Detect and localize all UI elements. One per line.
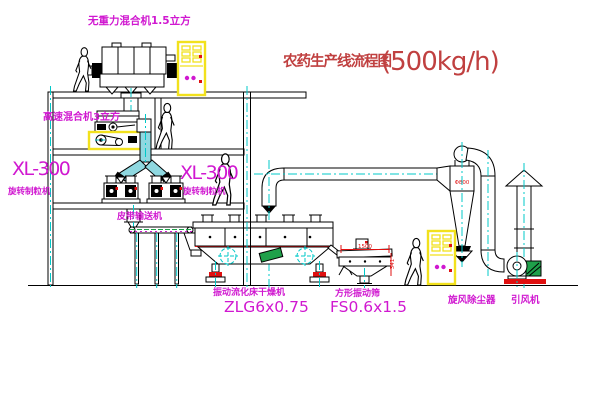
granulator-left-machine [102, 176, 140, 203]
fluid-bed-dryer [193, 215, 333, 287]
label-granulator-right-model: XL-300 [180, 162, 238, 184]
diagram-canvas: Φ800 [0, 0, 600, 403]
label-fan: 引风机 [511, 294, 540, 306]
dimension-screen-height: 341 [390, 259, 396, 270]
control-cabinet-top [178, 42, 205, 95]
dimension-screen-length: 1500 [358, 244, 372, 250]
label-cyclone: 旋风除尘器 [447, 294, 496, 306]
label-granulator-left-name: 旋转制粒机 [7, 186, 51, 197]
person-figure-roof [74, 48, 91, 91]
person-figure-ground [405, 238, 424, 285]
label-dryer-model: ZLG6x0.75 [224, 298, 309, 316]
control-cabinet-ground [428, 231, 455, 284]
label-hs-mixer: 高速混合机3立方 [43, 110, 120, 123]
label-dryer-name: 振动流化床干燥机 [213, 286, 285, 298]
label-belt-conveyor: 皮带输送机 [116, 210, 162, 222]
label-granulator-right-name: 旋转制粒机 [182, 186, 226, 197]
diagram-title-capacity: (500kg/h) [381, 47, 499, 77]
diagram-title: 农药生产线流程图 [282, 52, 391, 70]
label-granulator-left-model: XL-300 [12, 158, 70, 180]
process-flow-diagram: Φ800 [0, 0, 600, 403]
label-screen-model: FS0.6x1.5 [330, 298, 407, 316]
label-gravity-mixer: 无重力混合机1.5立方 [87, 14, 191, 27]
